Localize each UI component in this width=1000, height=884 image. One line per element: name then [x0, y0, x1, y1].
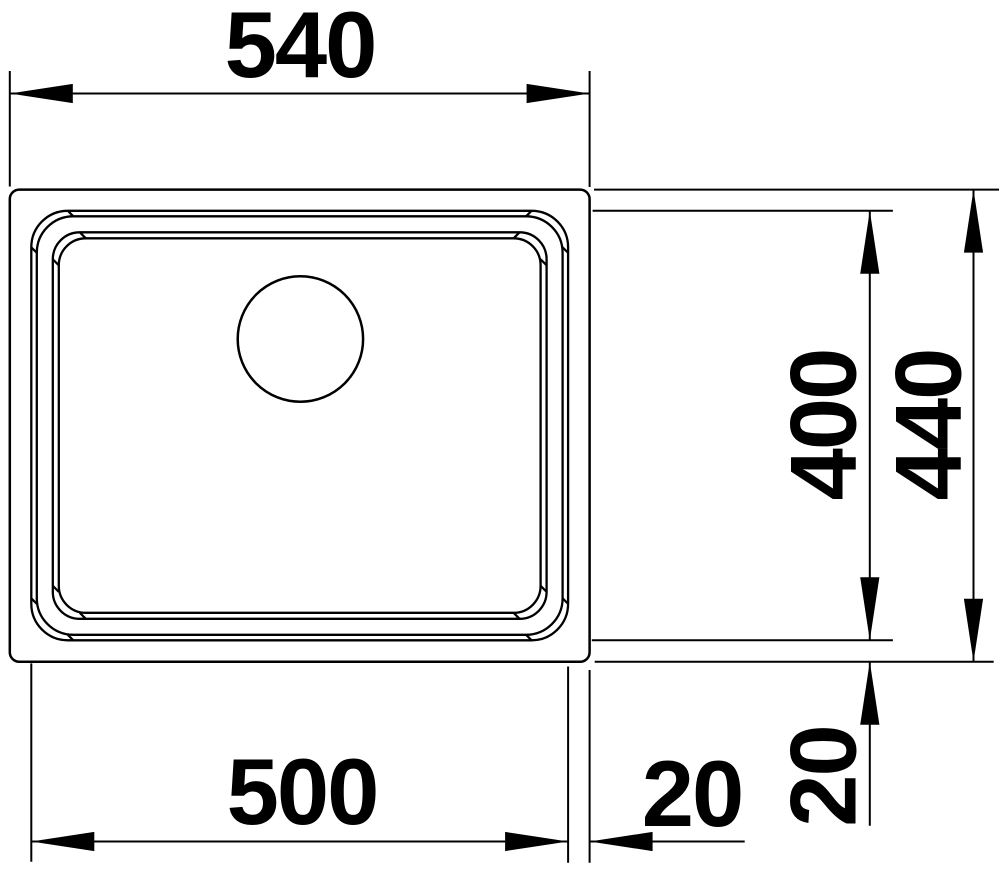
svg-text:500: 500 — [227, 739, 378, 844]
svg-text:540: 540 — [225, 0, 376, 97]
svg-text:440: 440 — [875, 350, 980, 501]
svg-text:400: 400 — [771, 350, 876, 501]
svg-text:20: 20 — [771, 726, 876, 827]
svg-text:20: 20 — [642, 741, 743, 846]
